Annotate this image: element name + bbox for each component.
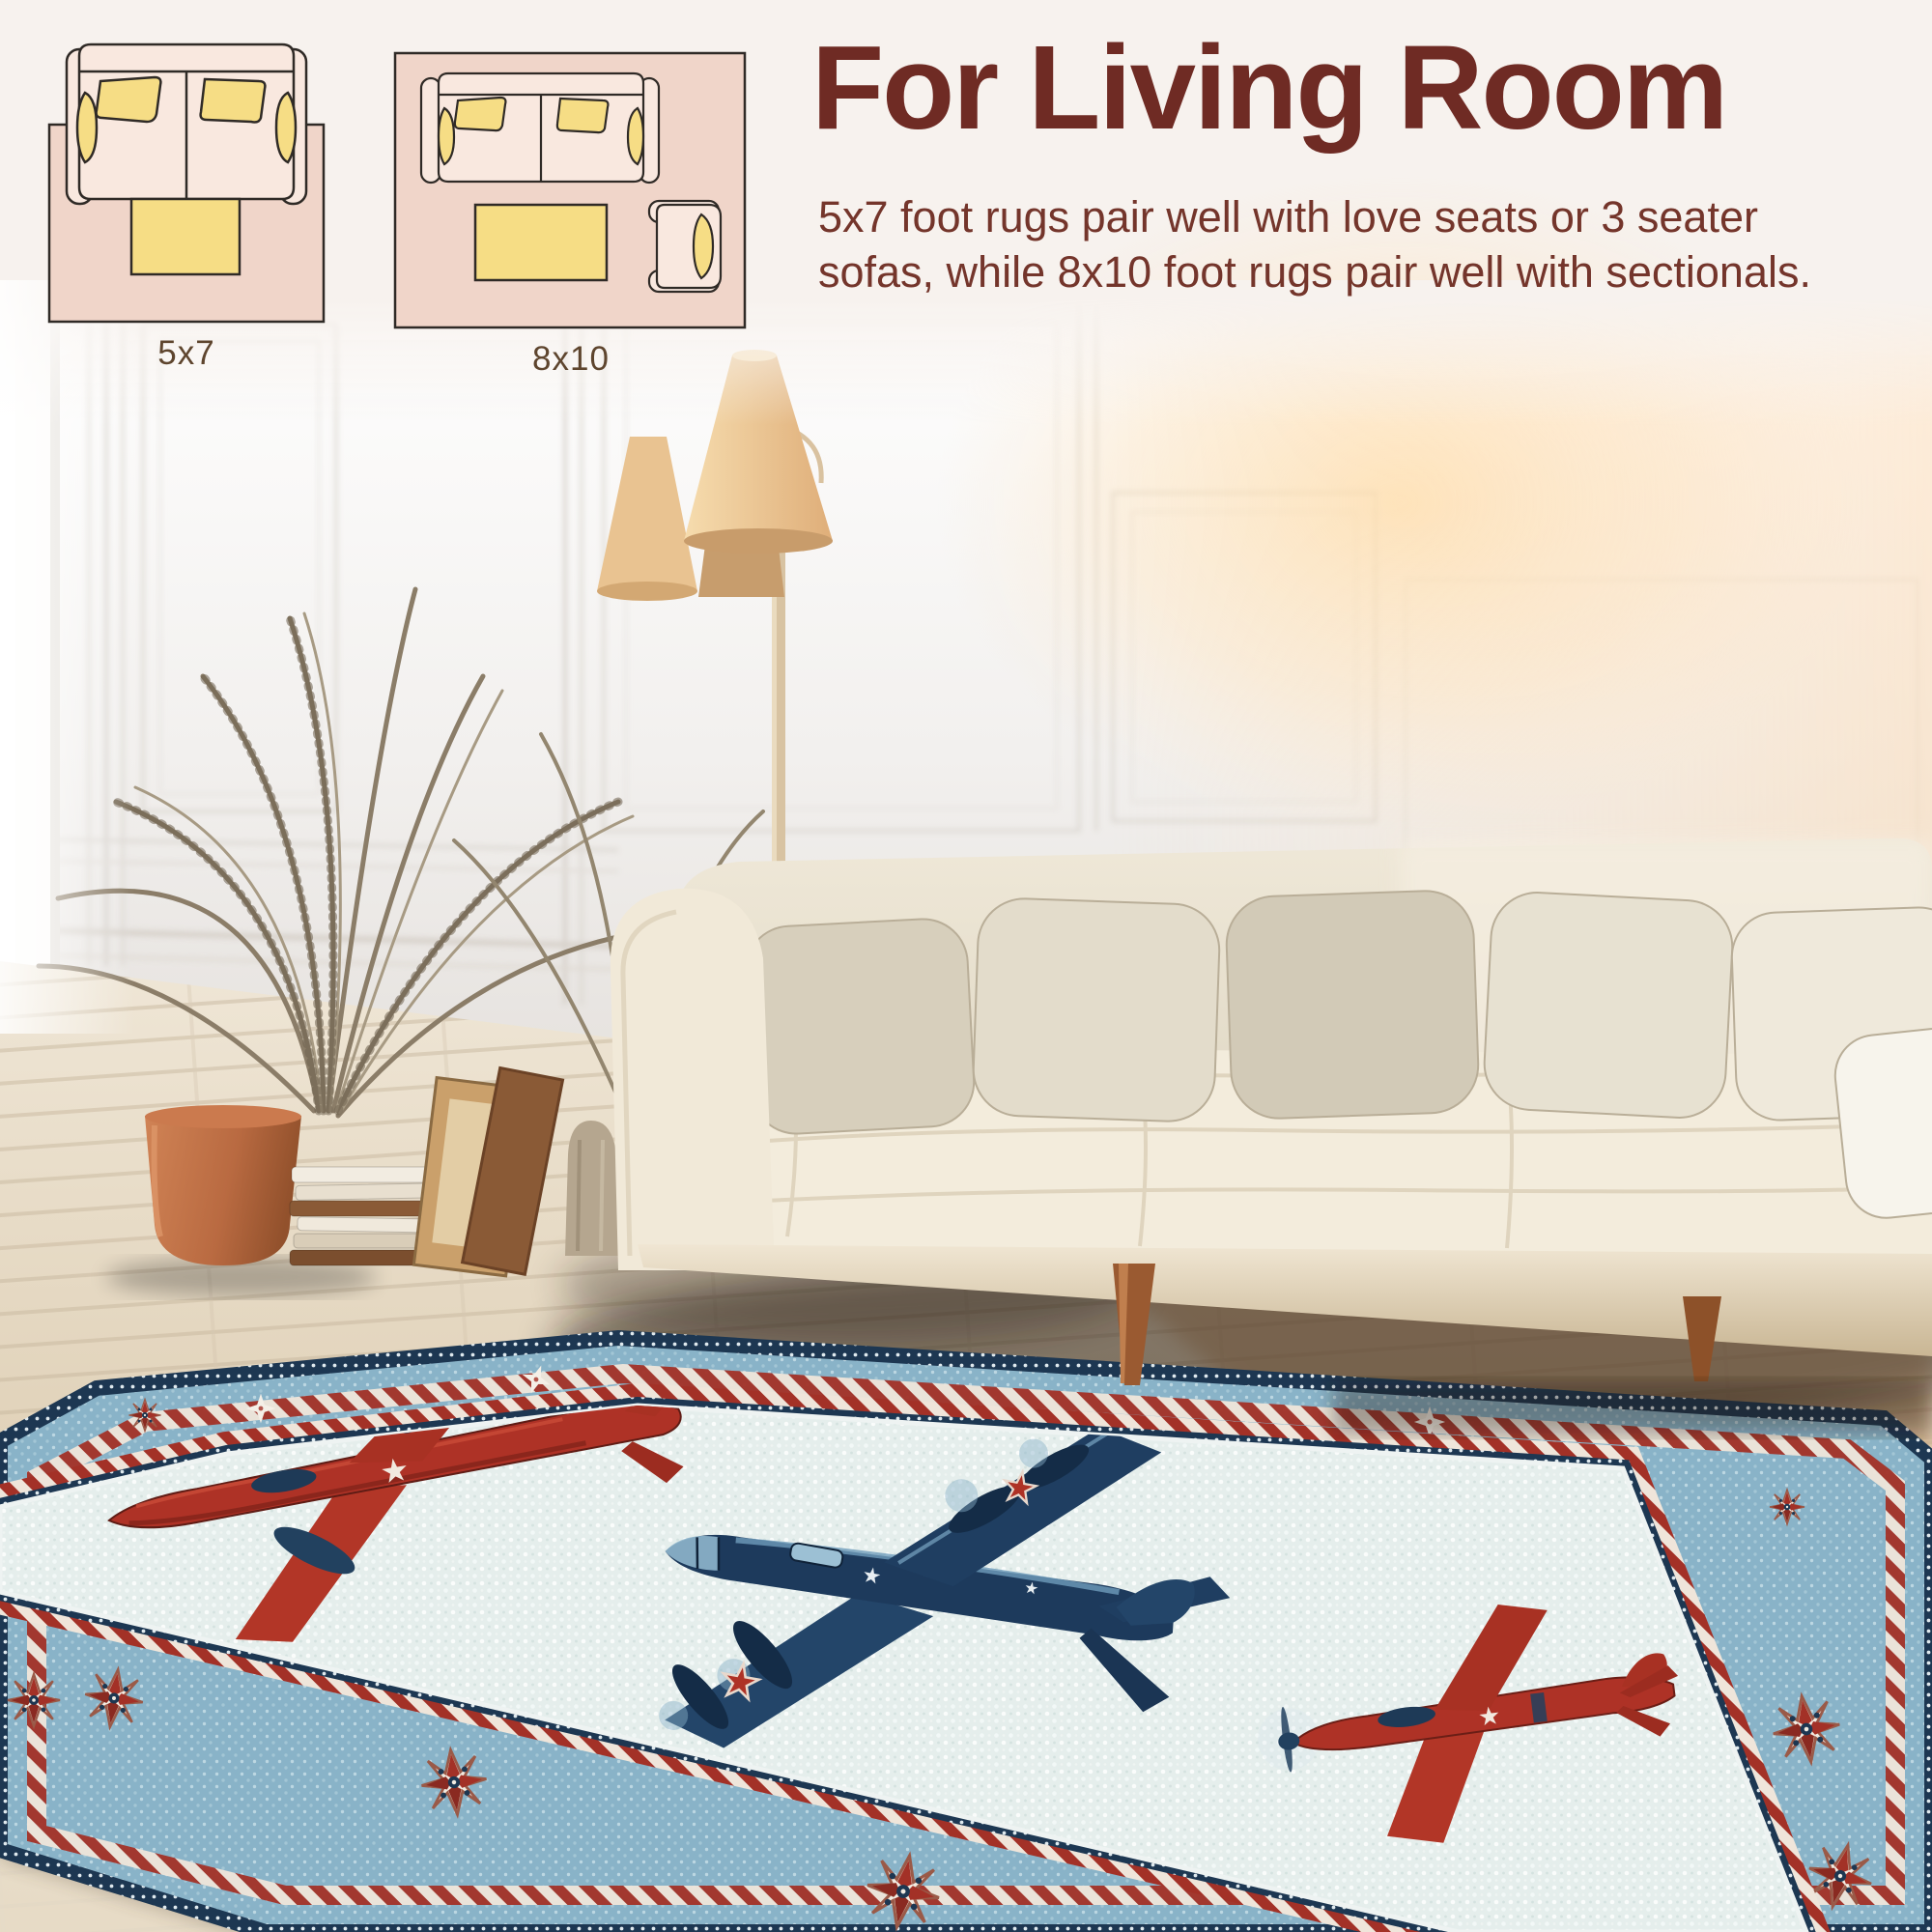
rug-size-diagram-8x10 <box>390 48 752 332</box>
description-line-2: sofas, while 8x10 foot rugs pair well wi… <box>818 244 1932 299</box>
three-seater-sofa-icon <box>421 73 659 183</box>
rug-size-diagram-5x7 <box>41 35 332 328</box>
coffee-table-icon <box>131 199 240 274</box>
coffee-table-icon <box>475 205 607 280</box>
page-description: 5x7 foot rugs pair well with love seats … <box>818 189 1932 299</box>
rug-size-label-5x7: 5x7 <box>41 334 332 373</box>
loveseat-sofa-icon <box>67 44 306 204</box>
sofa-left-arm <box>611 889 775 1270</box>
rug-size-label-8x10: 8x10 <box>390 340 752 379</box>
terracotta-pot <box>145 1105 301 1265</box>
description-line-1: 5x7 foot rugs pair well with love seats … <box>818 189 1932 244</box>
page-title: For Living Room <box>811 29 1726 148</box>
window-light-fade <box>0 280 135 1034</box>
under-sofa-shadow <box>1333 1381 1932 1435</box>
armchair-icon <box>649 201 721 292</box>
